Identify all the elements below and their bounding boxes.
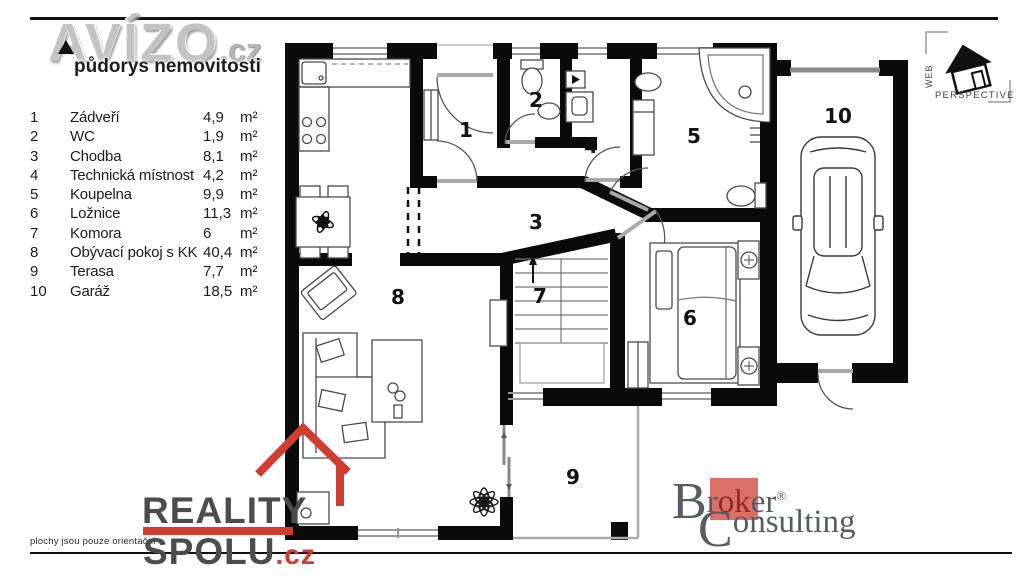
floor-plan-page: AVÍZO.cz půdorys nemovitosti 1Zádveří4,9… [0, 0, 1024, 576]
dining-set [296, 186, 350, 258]
perspective-label: PERSPECTIVE [935, 90, 1015, 101]
kitchen-sink [302, 62, 326, 84]
bracket-top-left [926, 32, 948, 54]
car-mirror [793, 216, 802, 230]
sliding-door [501, 425, 512, 497]
web-vertical-label: WEB [924, 64, 934, 88]
washing-machine [633, 100, 654, 155]
reality-spolu-word1: REALITY [142, 492, 307, 529]
sideboard [490, 300, 507, 346]
kitchen [299, 59, 410, 151]
nightstand [738, 241, 759, 279]
room-label-5: 5 [687, 124, 701, 148]
room-label-7: 7 [533, 284, 547, 308]
room-label-3: 3 [529, 210, 543, 234]
bath-toilet [727, 183, 766, 208]
wardrobe [424, 90, 438, 140]
coffee-table [372, 340, 422, 422]
room-label-10: 10 [824, 104, 852, 128]
room-label-4: 4 [584, 134, 598, 158]
reality-spolu-tld: .cz [275, 539, 315, 570]
staircase [515, 255, 608, 383]
tech-room-units [566, 71, 593, 122]
radiator [750, 128, 760, 142]
disclaimer-note: plochy jsou pouze orientační [30, 536, 156, 547]
registered-mark: ® [776, 488, 786, 503]
stove-hob [303, 118, 326, 144]
floor-plant [470, 488, 498, 516]
room-label-8: 8 [391, 285, 405, 309]
nightstand [738, 347, 759, 385]
dashed-opening [408, 187, 419, 253]
car-mirror [874, 216, 883, 230]
room-label-9: 9 [566, 465, 580, 489]
room-label-2: 2 [529, 88, 543, 112]
broker-consulting-logo: Broker® Consulting [672, 476, 902, 556]
web-perspective-logo: WEB PERSPECTIVE [918, 24, 1018, 108]
room-label-6: 6 [683, 306, 697, 330]
bedroom-wardrobe [628, 342, 648, 388]
reality-spolu-word2: SPOLU.cz [143, 533, 316, 570]
car [793, 137, 883, 335]
room-label-1: 1 [459, 118, 473, 142]
bathtub [699, 48, 770, 122]
armchair [300, 265, 357, 320]
bath-washbasin [635, 73, 661, 91]
house-icon [939, 39, 997, 95]
